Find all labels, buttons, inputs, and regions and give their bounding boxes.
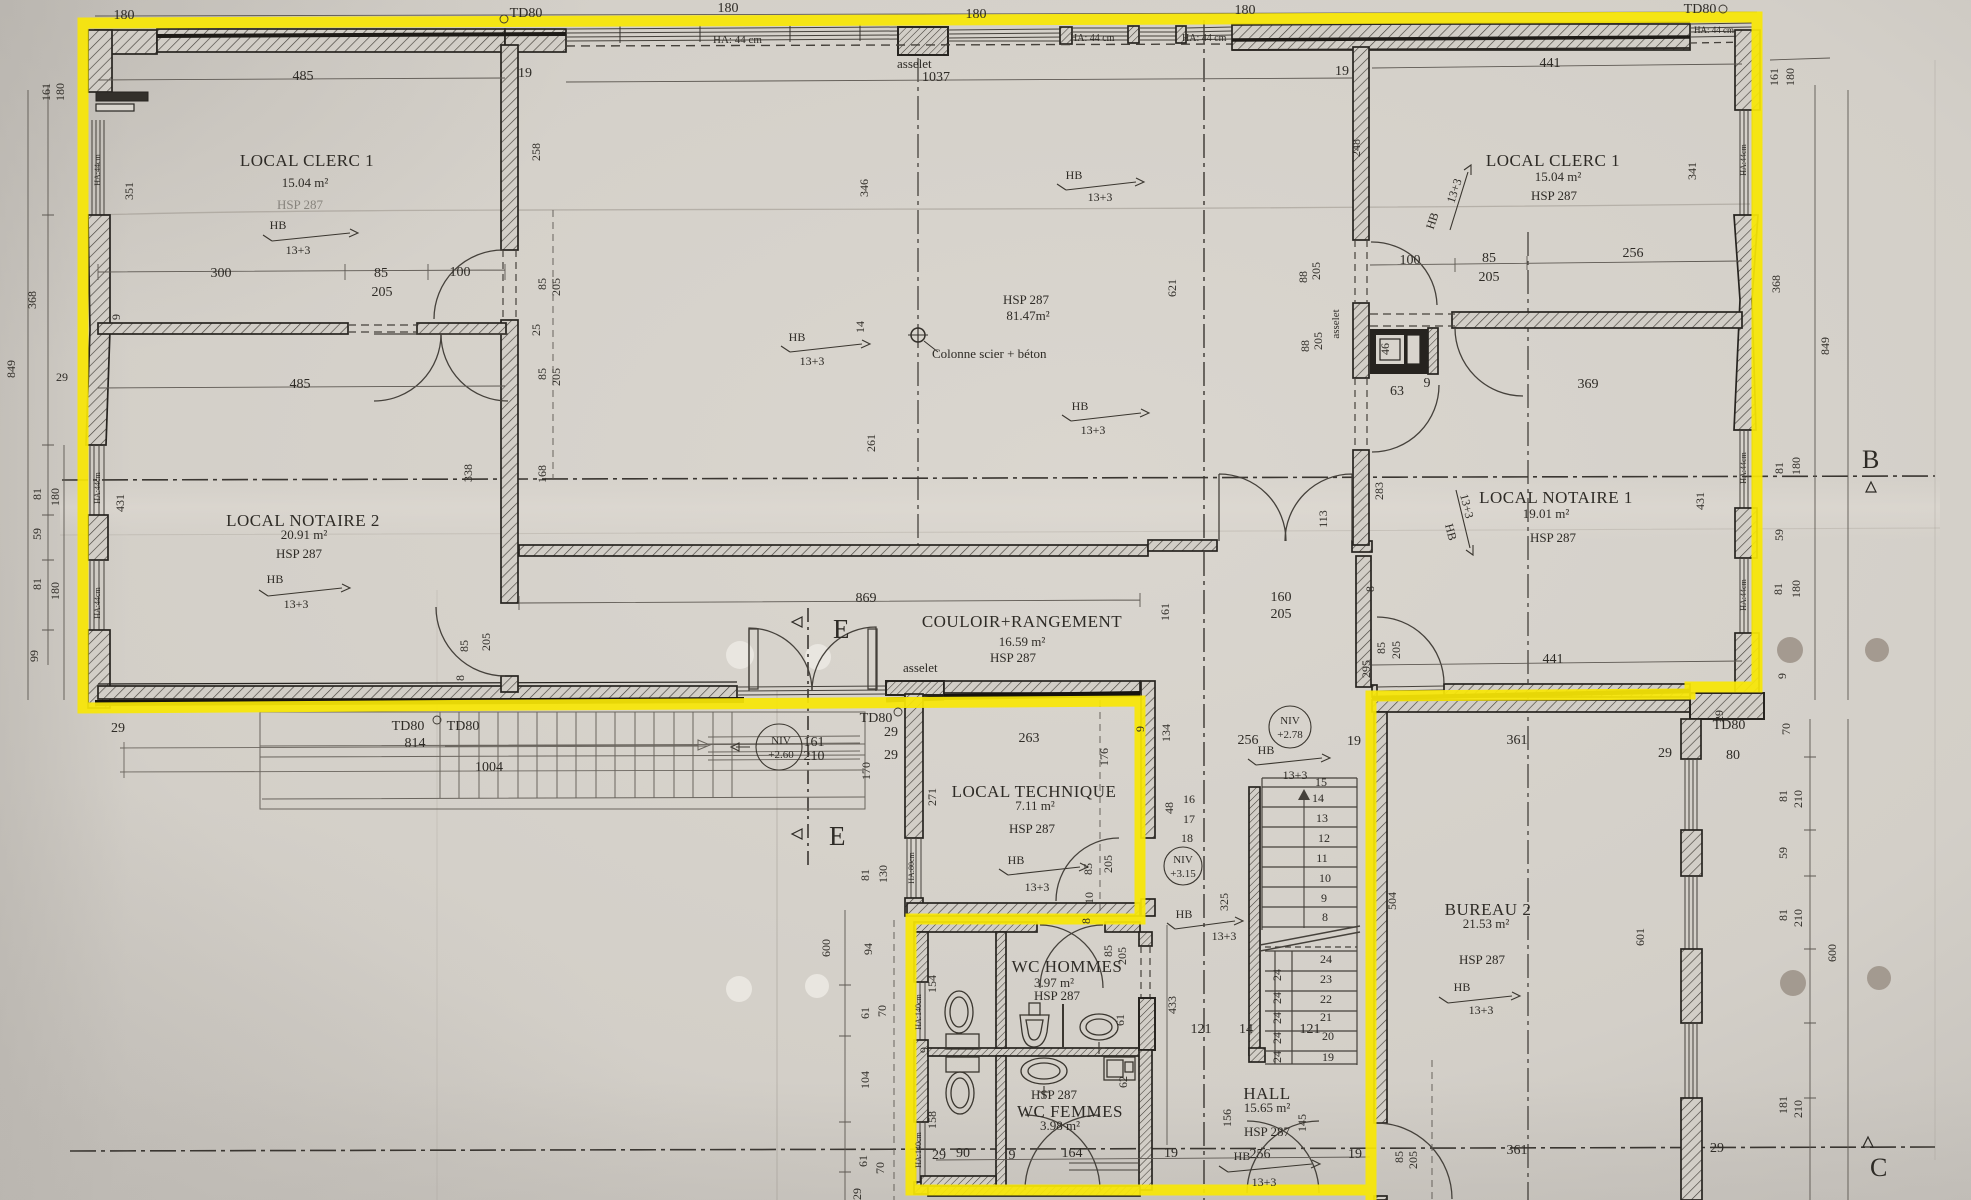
svg-text:81: 81 (858, 869, 872, 881)
svg-text:368: 368 (25, 291, 39, 309)
svg-text:19: 19 (1164, 1146, 1178, 1161)
svg-text:HA:44cm: HA:44cm (93, 471, 102, 503)
svg-text:16: 16 (1183, 792, 1195, 806)
svg-text:205: 205 (1101, 855, 1115, 873)
svg-text:HB: HB (789, 330, 806, 344)
svg-text:24: 24 (1270, 1012, 1284, 1024)
svg-text:85: 85 (457, 640, 471, 652)
svg-text:849: 849 (4, 360, 18, 378)
svg-text:181: 181 (1776, 1096, 1790, 1114)
svg-text:29: 29 (884, 725, 898, 740)
svg-text:70: 70 (875, 1005, 889, 1017)
svg-text:180: 180 (1789, 580, 1803, 598)
svg-text:COULOIR+RANGEMENT: COULOIR+RANGEMENT (922, 612, 1122, 631)
svg-text:81: 81 (1776, 909, 1790, 921)
svg-text:85: 85 (374, 266, 388, 281)
svg-text:13+3: 13+3 (1212, 929, 1237, 943)
svg-text:E: E (833, 614, 850, 644)
svg-text:LOCAL NOTAIRE 1: LOCAL NOTAIRE 1 (1479, 488, 1633, 507)
svg-text:62: 62 (1116, 1076, 1130, 1088)
svg-text:+2.60: +2.60 (768, 749, 794, 761)
svg-text:85: 85 (1101, 945, 1115, 957)
svg-text:15.04 m²: 15.04 m² (1535, 169, 1582, 184)
svg-text:WC HOMMES: WC HOMMES (1012, 957, 1123, 976)
svg-text:210: 210 (804, 749, 825, 764)
svg-text:180: 180 (48, 582, 62, 600)
svg-text:13+3: 13+3 (286, 243, 311, 257)
svg-text:HA: 44 cm: HA: 44 cm (1070, 33, 1115, 44)
svg-text:104: 104 (858, 1071, 872, 1089)
svg-text:156: 156 (1220, 1109, 1234, 1127)
svg-text:13+3: 13+3 (1469, 1003, 1494, 1017)
svg-text:154: 154 (925, 975, 939, 993)
svg-text:248: 248 (1349, 139, 1363, 157)
svg-text:21.53 m²: 21.53 m² (1463, 916, 1510, 931)
svg-text:24: 24 (1270, 1051, 1284, 1063)
svg-text:TD80: TD80 (392, 719, 425, 734)
svg-text:TD80: TD80 (447, 719, 480, 734)
svg-text:338: 338 (461, 464, 475, 482)
svg-text:HB: HB (1176, 907, 1193, 921)
svg-text:C: C (1870, 1153, 1887, 1182)
svg-text:HSP 287: HSP 287 (1003, 292, 1050, 307)
svg-text:369: 369 (1578, 377, 1599, 392)
svg-text:85: 85 (1392, 1151, 1406, 1163)
svg-text:HSP 287: HSP 287 (1034, 988, 1081, 1003)
svg-text:161: 161 (1767, 68, 1781, 86)
svg-text:B: B (1862, 445, 1879, 474)
svg-text:21: 21 (1320, 1010, 1332, 1024)
svg-text:HA:80cm: HA:80cm (907, 851, 916, 883)
svg-text:HSP 287: HSP 287 (1530, 530, 1577, 545)
svg-text:HA:44cm: HA:44cm (93, 586, 102, 618)
svg-text:81: 81 (1776, 790, 1790, 802)
svg-text:9: 9 (1424, 376, 1431, 391)
svg-text:130: 130 (876, 865, 890, 883)
svg-text:85: 85 (535, 278, 549, 290)
svg-text:HSP 287: HSP 287 (276, 546, 323, 561)
svg-text:TD80: TD80 (1684, 2, 1717, 17)
svg-text:341: 341 (1685, 162, 1699, 180)
svg-text:601: 601 (1633, 928, 1647, 946)
svg-text:HA:140cm: HA:140cm (914, 993, 923, 1029)
svg-text:HSP 287: HSP 287 (1031, 1087, 1078, 1102)
svg-text:205: 205 (1406, 1151, 1420, 1169)
svg-text:29: 29 (111, 721, 125, 736)
svg-text:14: 14 (1312, 791, 1324, 805)
svg-text:13+3: 13+3 (284, 597, 309, 611)
svg-text:13: 13 (1316, 811, 1328, 825)
svg-text:100: 100 (450, 265, 471, 280)
svg-text:346: 346 (857, 179, 871, 197)
svg-text:HA:44cm: HA:44cm (1739, 143, 1748, 175)
svg-text:325: 325 (1217, 893, 1231, 911)
svg-text:368: 368 (1769, 275, 1783, 293)
svg-text:19.01 m²: 19.01 m² (1523, 506, 1570, 521)
svg-text:9: 9 (1321, 891, 1327, 905)
svg-text:HA: 44 cm: HA: 44 cm (713, 34, 762, 46)
svg-text:24: 24 (1270, 992, 1284, 1004)
svg-text:E: E (829, 821, 846, 851)
svg-text:TD80: TD80 (510, 6, 543, 21)
svg-text:19: 19 (1335, 64, 1349, 79)
svg-text:29: 29 (1710, 1141, 1724, 1156)
svg-text:180: 180 (114, 8, 135, 23)
svg-text:81.47m²: 81.47m² (1006, 308, 1049, 323)
svg-text:17: 17 (1183, 812, 1195, 826)
svg-text:Colonne scier + béton: Colonne scier + béton (932, 346, 1047, 361)
svg-text:70: 70 (873, 1162, 887, 1174)
svg-text:180: 180 (53, 83, 67, 101)
svg-text:HA:140cm: HA:140cm (914, 1131, 923, 1167)
svg-text:HSP 287: HSP 287 (1531, 188, 1578, 203)
svg-text:20: 20 (1322, 1029, 1334, 1043)
svg-text:210: 210 (1791, 790, 1805, 808)
svg-text:22: 22 (1320, 992, 1332, 1006)
svg-text:121: 121 (1300, 1022, 1321, 1037)
svg-text:161: 161 (39, 83, 53, 101)
svg-text:145: 145 (1295, 1114, 1309, 1132)
svg-text:170: 170 (859, 762, 873, 780)
svg-text:20.91 m²: 20.91 m² (281, 527, 328, 542)
svg-text:19: 19 (1348, 1147, 1362, 1162)
svg-text:180: 180 (1789, 457, 1803, 475)
svg-text:61: 61 (856, 1155, 870, 1167)
svg-text:210: 210 (1791, 909, 1805, 927)
svg-text:70: 70 (1779, 723, 1793, 735)
svg-text:61: 61 (1113, 1014, 1127, 1026)
svg-text:271: 271 (925, 788, 939, 806)
svg-text:9: 9 (917, 1047, 931, 1053)
svg-text:HA:44cm: HA:44cm (1739, 578, 1748, 610)
svg-text:LOCAL CLERC 1: LOCAL CLERC 1 (240, 151, 374, 170)
svg-text:25: 25 (529, 324, 543, 336)
svg-text:10: 10 (1082, 892, 1096, 904)
svg-text:85: 85 (1482, 251, 1496, 266)
svg-text:85: 85 (1374, 642, 1388, 654)
svg-text:180: 180 (718, 1, 739, 16)
svg-text:164: 164 (1062, 1146, 1083, 1161)
svg-text:161: 161 (804, 735, 825, 750)
svg-text:HB: HB (1072, 399, 1089, 413)
svg-text:295: 295 (1359, 660, 1373, 678)
svg-text:441: 441 (1543, 652, 1564, 667)
svg-text:176: 176 (1097, 748, 1111, 766)
svg-text:HA: 44 cm: HA: 44 cm (1182, 33, 1227, 44)
svg-text:19: 19 (518, 66, 532, 81)
svg-text:3.98 m²: 3.98 m² (1040, 1118, 1080, 1133)
svg-text:9: 9 (1775, 673, 1789, 679)
svg-text:85: 85 (535, 368, 549, 380)
svg-text:8: 8 (1322, 910, 1328, 924)
svg-text:19: 19 (1322, 1050, 1334, 1064)
svg-text:160: 160 (1271, 590, 1292, 605)
svg-text:180: 180 (1235, 3, 1256, 18)
svg-text:8: 8 (453, 675, 467, 681)
svg-text:431: 431 (1693, 492, 1707, 510)
svg-text:HB: HB (1454, 980, 1471, 994)
svg-text:85: 85 (1081, 863, 1095, 875)
svg-text:NIV: NIV (1280, 715, 1300, 727)
svg-text:HA: 44 cm: HA: 44 cm (1694, 25, 1734, 35)
svg-text:205: 205 (1311, 332, 1325, 350)
svg-text:441: 441 (1540, 56, 1561, 71)
svg-text:61: 61 (858, 1007, 872, 1019)
svg-text:81: 81 (30, 578, 44, 590)
svg-text:90: 90 (956, 1146, 970, 1161)
svg-text:12: 12 (1318, 831, 1330, 845)
svg-text:HB: HB (270, 218, 287, 232)
svg-text:59: 59 (1776, 847, 1790, 859)
svg-text:18: 18 (1181, 831, 1193, 845)
svg-text:asselet: asselet (897, 56, 932, 71)
svg-text:485: 485 (290, 377, 311, 392)
svg-text:205: 205 (372, 285, 393, 300)
svg-text:29: 29 (932, 1148, 946, 1163)
svg-text:59: 59 (1772, 529, 1786, 541)
svg-text:63: 63 (1390, 384, 1404, 399)
svg-text:869: 869 (856, 591, 877, 606)
svg-text:HSP 287: HSP 287 (990, 650, 1037, 665)
svg-text:100: 100 (1400, 253, 1421, 268)
svg-text:361: 361 (1507, 1143, 1528, 1158)
svg-text:88: 88 (1298, 340, 1312, 352)
svg-text:81: 81 (1772, 462, 1786, 474)
svg-text:10: 10 (1319, 871, 1331, 885)
svg-text:81: 81 (1771, 583, 1785, 595)
svg-text:256: 256 (1623, 246, 1644, 261)
svg-text:24: 24 (1320, 952, 1332, 966)
svg-text:504: 504 (1385, 892, 1399, 910)
svg-text:13+3: 13+3 (1081, 423, 1106, 437)
svg-text:210: 210 (1791, 1100, 1805, 1118)
svg-text:19: 19 (1347, 734, 1361, 749)
svg-text:23: 23 (1320, 972, 1332, 986)
svg-text:HSP 287: HSP 287 (277, 197, 324, 212)
svg-text:600: 600 (819, 939, 833, 957)
svg-text:180: 180 (48, 488, 62, 506)
svg-text:HSP 287: HSP 287 (1459, 952, 1506, 967)
svg-text:9: 9 (1009, 1148, 1016, 1163)
svg-text:29: 29 (850, 1188, 864, 1200)
svg-text:TD80: TD80 (860, 711, 893, 726)
svg-text:15: 15 (1315, 775, 1327, 789)
svg-text:205: 205 (1115, 947, 1129, 965)
svg-text:94: 94 (861, 943, 875, 955)
svg-text:NIV: NIV (771, 735, 791, 747)
svg-text:205: 205 (479, 633, 493, 651)
svg-text:621: 621 (1165, 279, 1179, 297)
svg-text:13+3: 13+3 (1252, 1175, 1277, 1189)
svg-text:849: 849 (1818, 337, 1832, 355)
svg-text:258: 258 (529, 143, 543, 161)
svg-text:15.04 m²: 15.04 m² (282, 175, 329, 190)
svg-text:16.59 m²: 16.59 m² (999, 634, 1046, 649)
svg-text:180: 180 (966, 7, 987, 22)
svg-text:256: 256 (1238, 733, 1259, 748)
svg-text:asselet: asselet (903, 660, 938, 675)
svg-text:205: 205 (1479, 270, 1500, 285)
svg-text:263: 263 (1019, 731, 1040, 746)
svg-text:HB: HB (267, 572, 284, 586)
svg-text:24: 24 (1270, 969, 1284, 981)
svg-text:256: 256 (1250, 1147, 1271, 1162)
svg-text:14: 14 (1239, 1022, 1253, 1037)
svg-text:8: 8 (1079, 918, 1093, 924)
svg-text:46: 46 (1378, 343, 1392, 355)
svg-text:13+3: 13+3 (800, 354, 825, 368)
svg-text:+3.15: +3.15 (1170, 868, 1196, 880)
svg-text:29: 29 (884, 748, 898, 763)
svg-text:814: 814 (405, 736, 426, 751)
svg-text:168: 168 (535, 465, 549, 483)
svg-text:8: 8 (1363, 586, 1377, 592)
svg-text:HSP 287: HSP 287 (1009, 821, 1056, 836)
svg-text:HB: HB (1234, 1149, 1251, 1163)
svg-text:HB: HB (1066, 168, 1083, 182)
svg-text:29: 29 (1658, 746, 1672, 761)
svg-text:205: 205 (1271, 607, 1292, 622)
svg-text:13+3: 13+3 (1283, 768, 1308, 782)
svg-text:205: 205 (1309, 262, 1323, 280)
svg-text:134: 134 (1159, 724, 1173, 742)
svg-text:99: 99 (27, 650, 41, 662)
svg-text:HSP 287: HSP 287 (1244, 1124, 1291, 1139)
svg-text:261: 261 (864, 434, 878, 452)
svg-text:24: 24 (1270, 1032, 1284, 1044)
svg-text:LOCAL CLERC 1: LOCAL CLERC 1 (1486, 151, 1620, 170)
svg-text:180: 180 (1783, 68, 1797, 86)
svg-text:asselet: asselet (1330, 309, 1342, 338)
svg-text:113: 113 (1316, 510, 1330, 528)
svg-text:351: 351 (122, 182, 136, 200)
svg-text:29: 29 (56, 370, 68, 384)
svg-text:485: 485 (293, 69, 314, 84)
svg-text:15.65 m²: 15.65 m² (1244, 1100, 1291, 1115)
svg-text:205: 205 (1389, 641, 1403, 659)
svg-text:7.11 m²: 7.11 m² (1015, 798, 1055, 813)
svg-text:11: 11 (1316, 851, 1328, 865)
svg-text:1004: 1004 (475, 760, 503, 775)
svg-text:13+3: 13+3 (1088, 190, 1113, 204)
svg-text:+2.78: +2.78 (1277, 729, 1303, 741)
svg-text:600: 600 (1825, 944, 1839, 962)
svg-text:300: 300 (211, 266, 232, 281)
svg-text:14: 14 (853, 321, 867, 333)
svg-text:361: 361 (1507, 733, 1528, 748)
svg-text:80: 80 (1726, 748, 1740, 763)
svg-text:HB: HB (1008, 853, 1025, 867)
svg-text:161: 161 (1158, 603, 1172, 621)
svg-text:431: 431 (113, 494, 127, 512)
svg-text:29: 29 (1712, 710, 1726, 722)
svg-text:NIV: NIV (1173, 854, 1193, 866)
svg-text:88: 88 (1296, 271, 1310, 283)
svg-text:205: 205 (549, 368, 563, 386)
svg-text:HA:44cm: HA:44cm (1739, 451, 1748, 483)
svg-text:81: 81 (30, 488, 44, 500)
svg-text:9: 9 (1133, 726, 1147, 732)
svg-text:HA:44cm: HA:44cm (93, 153, 102, 185)
svg-text:283: 283 (1372, 482, 1386, 500)
svg-text:59: 59 (30, 528, 44, 540)
svg-text:13+3: 13+3 (1025, 880, 1050, 894)
svg-text:158: 158 (925, 1111, 939, 1129)
svg-text:433: 433 (1165, 996, 1179, 1014)
svg-text:121: 121 (1191, 1022, 1212, 1037)
svg-text:HB: HB (1258, 743, 1275, 757)
svg-text:48: 48 (1162, 802, 1176, 814)
svg-text:205: 205 (549, 278, 563, 296)
svg-text:1037: 1037 (922, 70, 950, 85)
svg-text:9: 9 (109, 314, 123, 320)
